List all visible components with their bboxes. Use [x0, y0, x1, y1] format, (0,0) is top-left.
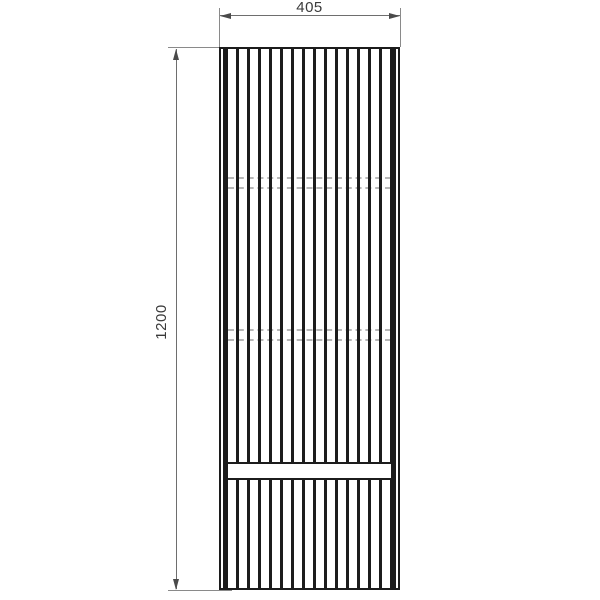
height-dimension-label: 1200	[147, 308, 175, 336]
height-extension-line-top	[168, 47, 219, 48]
dimension-arrow-left-icon	[220, 13, 231, 19]
height-dimension-line	[176, 49, 177, 589]
cabinet-outline	[219, 47, 400, 590]
dimension-arrow-up-icon	[173, 49, 179, 60]
dimension-arrow-down-icon	[173, 579, 179, 590]
height-extension-line-bottom	[168, 590, 232, 591]
fluted-front-panel	[228, 49, 391, 588]
width-dimension-line	[220, 15, 400, 16]
right-stile-bar	[391, 49, 396, 588]
bottom-rail	[228, 462, 391, 480]
width-dimension-label: 405	[219, 0, 400, 15]
width-extension-line-right	[400, 8, 401, 47]
height-dimension-text: 1200	[154, 304, 169, 339]
technical-drawing: 405 1200	[0, 0, 600, 600]
dimension-arrow-right-icon	[389, 13, 400, 19]
slat-lines	[228, 49, 391, 588]
